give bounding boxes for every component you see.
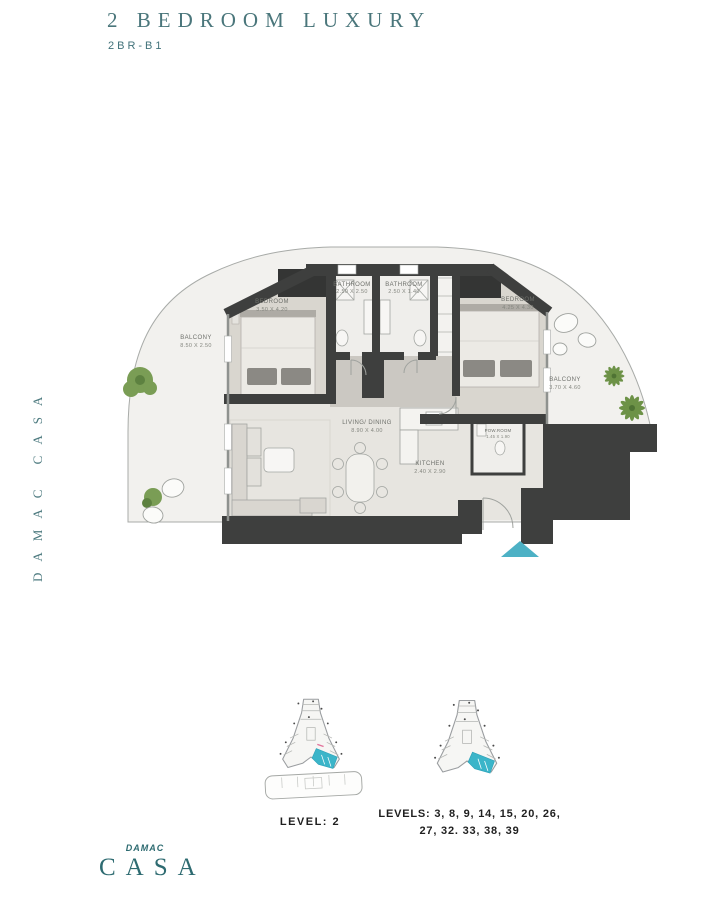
bedroom2-dims: 4.25 X 4.30 <box>502 305 533 311</box>
balcony-right-label: BALCONY <box>549 377 580 383</box>
coffee-table <box>264 448 294 472</box>
kitchen-label: KITCHEN <box>415 461 444 467</box>
key-plan-levels-caption: LEVELS: 3, 8, 9, 14, 15, 20, 26, 27, 32.… <box>372 806 567 840</box>
floor-plan-drawing: BEDROOM 3.50 X 4.20 BATHROOM 2.50 X 2.50… <box>0 0 724 900</box>
logo-brand-text: DAMAC <box>90 843 200 853</box>
powder-room-label: POW.ROOM <box>485 428 512 433</box>
living-dining-dims: 8.90 X 4.00 <box>351 428 382 434</box>
levels-line-1: LEVELS: 3, 8, 9, 14, 15, 20, 26, <box>372 806 567 823</box>
balcony-right-dims: 3.70 X 4.60 <box>549 385 580 391</box>
living-dining-label: LIVING/ DINING <box>342 420 392 426</box>
bedroom2-label: BEDROOM <box>501 297 535 303</box>
brochure-page: { "header": { "title": "2 BEDROOM LUXURY… <box>0 0 724 900</box>
balcony-left-label: BALCONY <box>180 335 211 341</box>
podium-outline <box>265 771 363 799</box>
levels-line-2: 27, 32. 33, 38, 39 <box>372 823 567 840</box>
hall-floor <box>330 356 460 407</box>
powder-room-dims: 1.45 X 1.90 <box>486 434 510 439</box>
kitchen-dims: 2.40 X 2.90 <box>414 469 445 475</box>
bathroom2-dims: 2.50 X 1.40 <box>388 289 419 295</box>
brand-logo: DAMAC CASA <box>90 843 200 882</box>
key-plan-level-caption: LEVEL: 2 <box>235 814 385 831</box>
logo-name-text: CASA <box>99 854 200 882</box>
key-plan-level-2 <box>265 699 363 799</box>
bathroom1-label: BATHROOM <box>333 282 370 288</box>
key-plan-levels <box>434 701 500 774</box>
dining-table <box>346 454 374 502</box>
bathroom1-dims: 2.50 X 2.50 <box>336 289 367 295</box>
bedroom1-dims: 3.50 X 4.20 <box>256 307 287 313</box>
bathroom2-label: BATHROOM <box>385 282 422 288</box>
powder-room <box>472 418 524 474</box>
bedroom1-label: BEDROOM <box>255 299 289 305</box>
armchair <box>300 498 326 513</box>
balcony-left-dims: 8.50 X 2.50 <box>180 343 211 349</box>
